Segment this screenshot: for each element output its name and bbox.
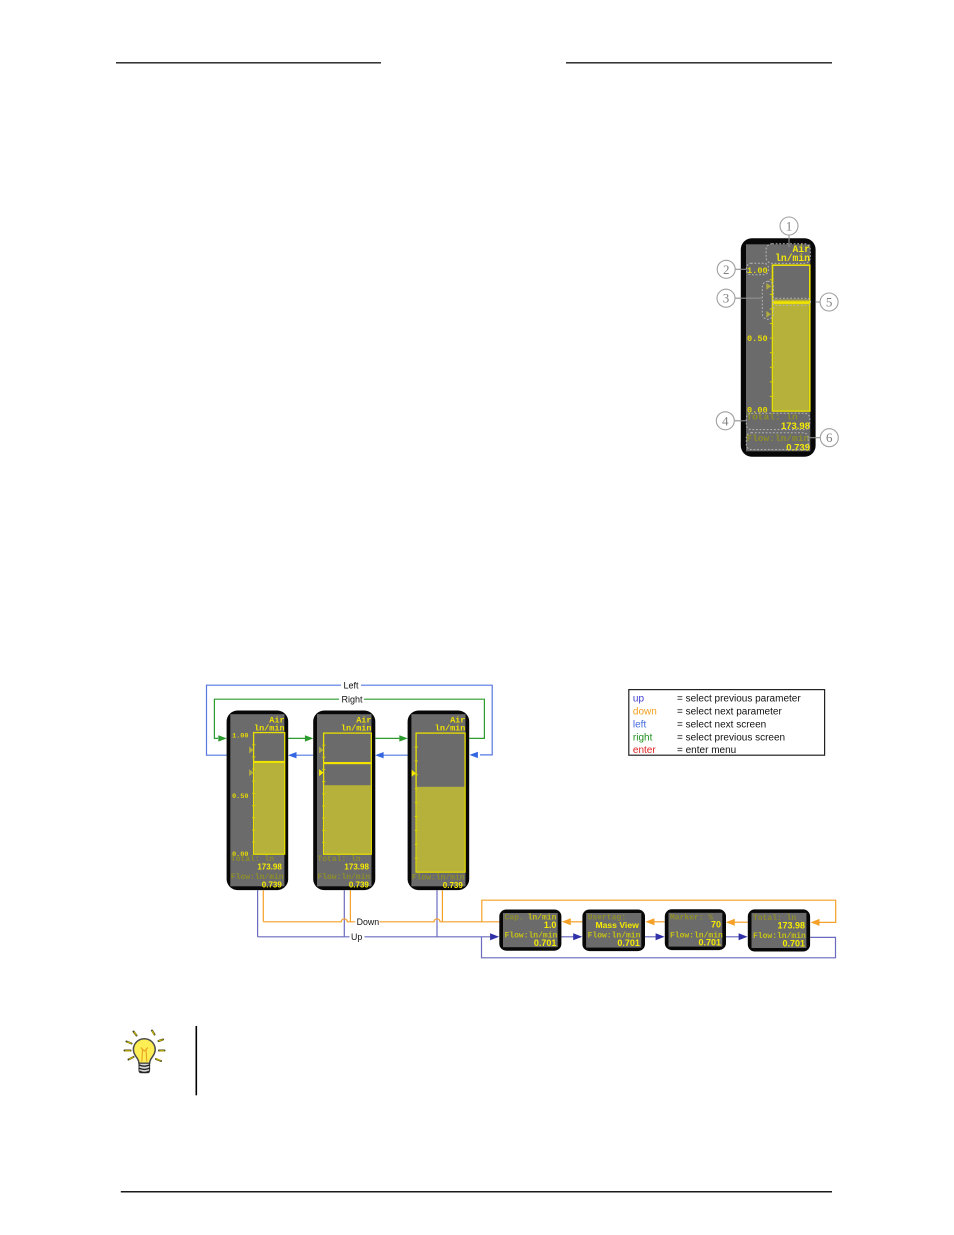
svg-text:4: 4	[722, 413, 729, 428]
svg-text:0.739: 0.739	[262, 880, 283, 889]
svg-text:1.0: 1.0	[544, 920, 557, 930]
svg-text:6: 6	[826, 430, 833, 445]
svg-text:= select previous parameter: = select previous parameter	[677, 694, 801, 705]
svg-text:Marker: %: Marker: %	[670, 913, 713, 922]
svg-text:= select previous screen: = select previous screen	[677, 732, 785, 743]
svg-text:0.701: 0.701	[782, 938, 805, 948]
svg-text:0.701: 0.701	[617, 938, 640, 948]
svg-text:left: left	[633, 719, 647, 730]
svg-text:3: 3	[723, 291, 730, 306]
svg-text:70: 70	[711, 920, 721, 930]
svg-text:1.00: 1.00	[747, 266, 768, 276]
svg-text:= enter menu: = enter menu	[677, 745, 736, 756]
svg-text:= select next screen: = select next screen	[677, 719, 766, 730]
svg-text:enter: enter	[633, 745, 656, 756]
svg-text:0.701: 0.701	[698, 938, 721, 948]
svg-text:0.701: 0.701	[534, 938, 557, 948]
svg-text:173.98: 173.98	[781, 421, 810, 432]
svg-text:ln/min: ln/min	[435, 724, 466, 734]
svg-text:up: up	[633, 694, 645, 705]
svg-text:ln/min: ln/min	[775, 253, 810, 264]
svg-text:173.98: 173.98	[777, 920, 805, 930]
svg-text:Cap.: Cap.	[505, 914, 524, 923]
svg-text:2: 2	[723, 262, 730, 277]
svg-text:1: 1	[786, 219, 793, 234]
svg-text:0.739: 0.739	[786, 443, 810, 454]
svg-text:5: 5	[826, 295, 833, 310]
svg-text:173.98: 173.98	[344, 862, 369, 871]
svg-text:down: down	[633, 707, 657, 718]
svg-text:173.98: 173.98	[257, 862, 282, 871]
svg-text:Mass View: Mass View	[595, 920, 639, 930]
svg-text:Right: Right	[341, 695, 363, 705]
svg-text:Down: Down	[357, 917, 380, 927]
svg-text:0.739: 0.739	[349, 880, 370, 889]
svg-text:Left: Left	[343, 680, 359, 690]
svg-text:ln/min: ln/min	[341, 724, 372, 734]
svg-text:0.50: 0.50	[232, 793, 248, 801]
svg-text:0.739: 0.739	[443, 881, 464, 890]
svg-text:0.50: 0.50	[747, 334, 768, 344]
svg-text:1.00: 1.00	[232, 733, 248, 741]
svg-text:Up: Up	[351, 932, 362, 942]
svg-text:right: right	[633, 732, 653, 743]
svg-text:= select next parameter: = select next parameter	[677, 707, 782, 718]
